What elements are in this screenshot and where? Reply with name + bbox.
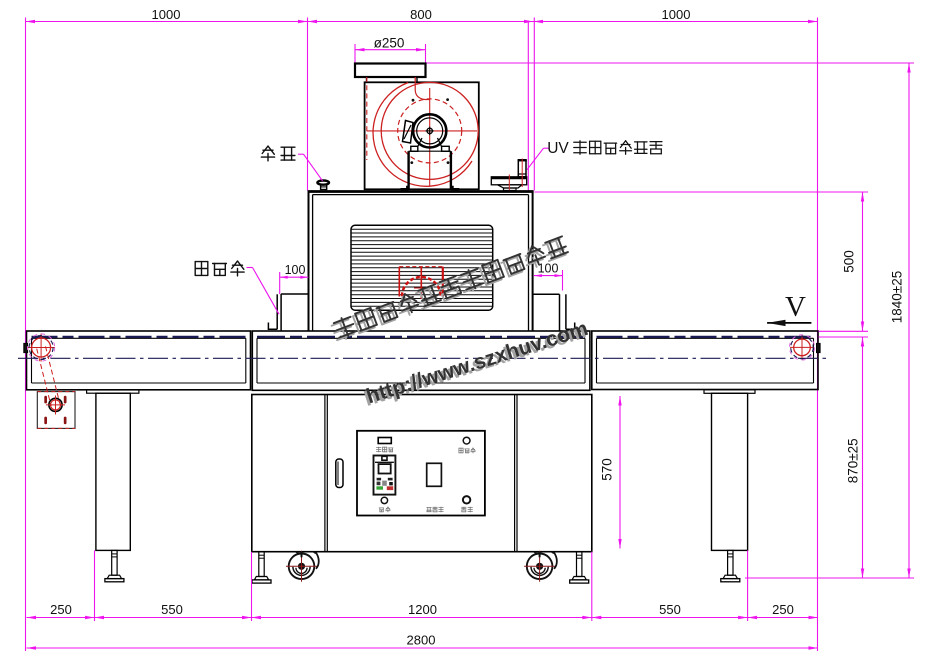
svg-text:550: 550 (659, 602, 681, 617)
svg-text:ø250: ø250 (374, 36, 405, 51)
svg-text:100: 100 (538, 262, 559, 276)
svg-text:250: 250 (50, 602, 72, 617)
svg-text:800: 800 (410, 7, 432, 22)
svg-text:250: 250 (772, 602, 794, 617)
svg-text:500: 500 (842, 250, 857, 273)
svg-text:UV: UV (547, 140, 569, 157)
svg-text:1000: 1000 (662, 7, 691, 22)
svg-text:V: V (785, 291, 806, 323)
svg-text:1840±25: 1840±25 (890, 271, 905, 323)
svg-text:870±25: 870±25 (846, 438, 861, 483)
svg-text:1200: 1200 (408, 602, 437, 617)
svg-text:1000: 1000 (152, 7, 181, 22)
svg-text:550: 550 (161, 602, 183, 617)
svg-text:2800: 2800 (407, 633, 436, 648)
svg-text:100: 100 (285, 263, 306, 277)
svg-text:570: 570 (600, 458, 615, 481)
